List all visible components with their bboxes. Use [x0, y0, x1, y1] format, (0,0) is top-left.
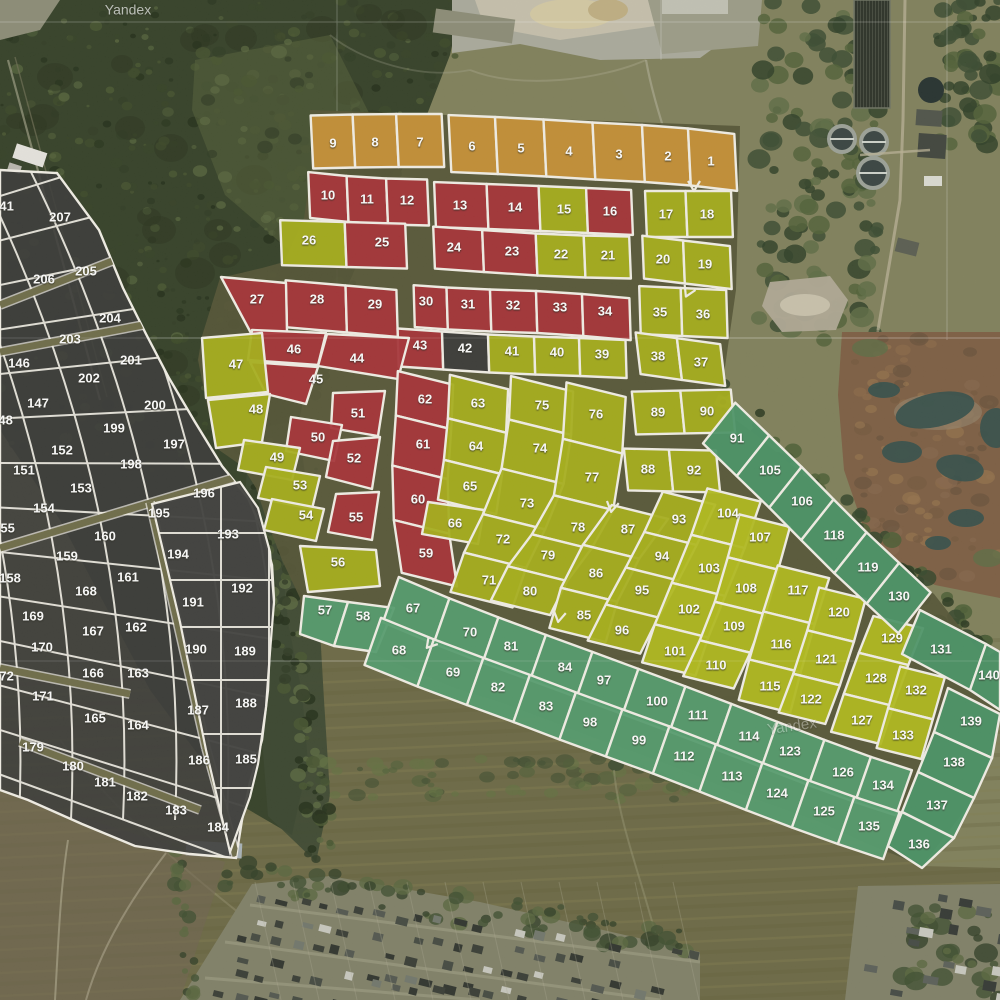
- svg-text:Yandex: Yandex: [105, 2, 151, 18]
